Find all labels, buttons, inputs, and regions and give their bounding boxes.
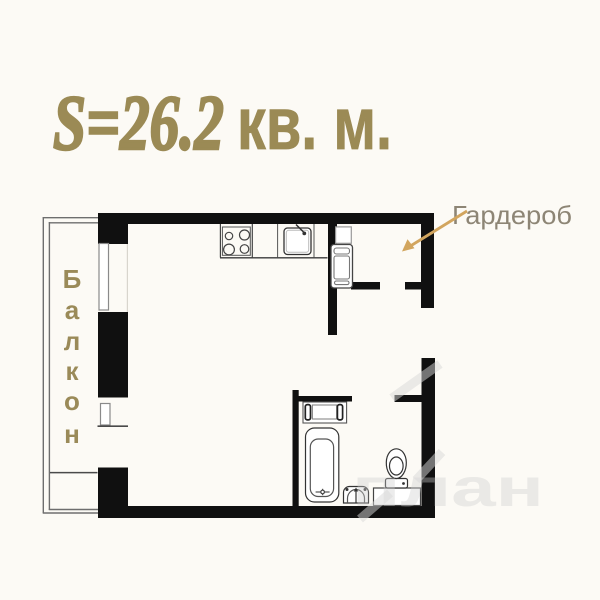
svg-text:н: н	[64, 419, 80, 449]
svg-text:к: к	[65, 356, 79, 386]
svg-text:л: л	[64, 326, 81, 356]
svg-text:а: а	[65, 295, 80, 325]
svg-text:S=26.2: S=26.2	[53, 79, 224, 166]
svg-text:Б: Б	[63, 264, 82, 294]
svg-text:о: о	[64, 386, 80, 416]
svg-text:Гардероб: Гардероб	[452, 200, 572, 230]
svg-text:план: план	[352, 458, 544, 518]
svg-text:кв. м.: кв. м.	[237, 82, 392, 165]
